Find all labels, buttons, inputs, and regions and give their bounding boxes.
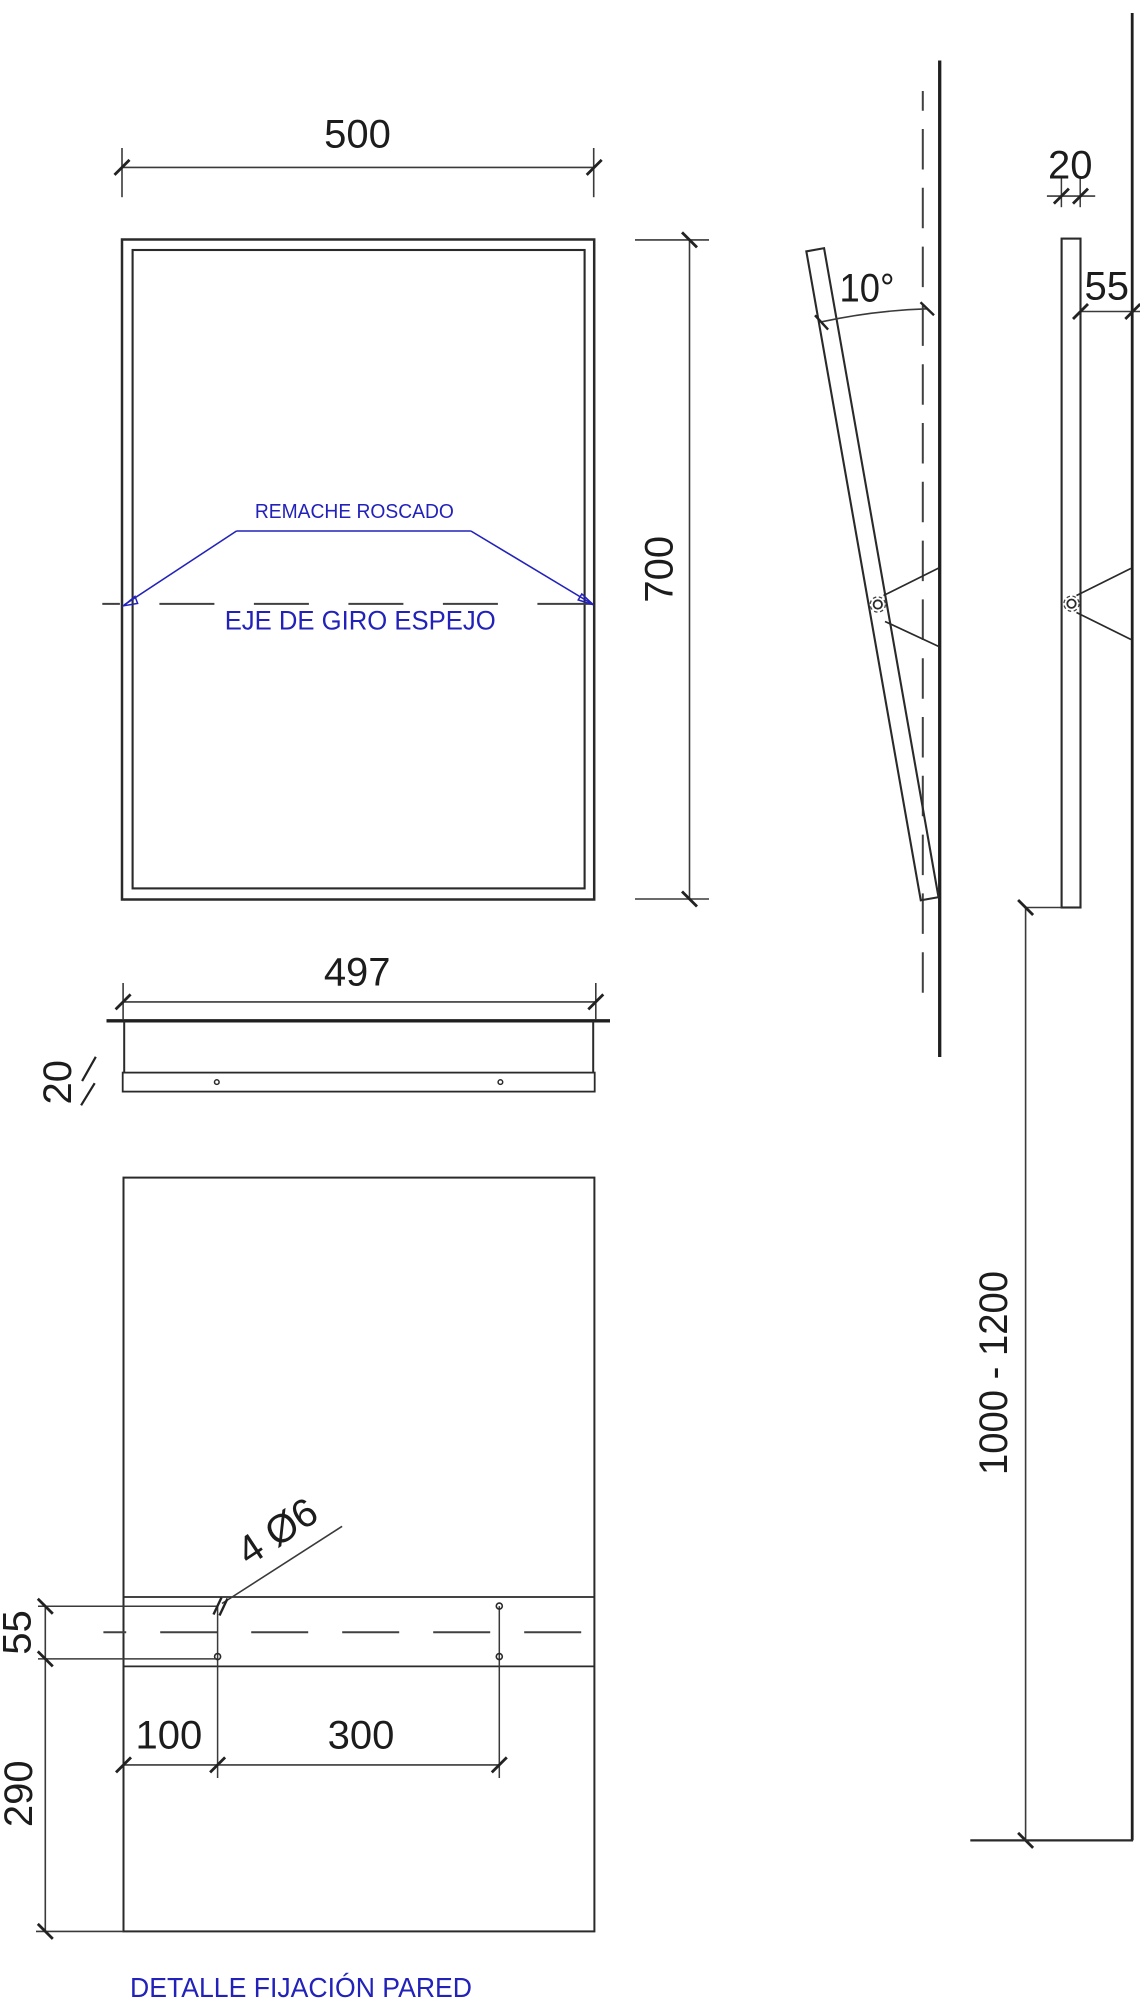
svg-text:DETALLE FIJACIÓN PARED: DETALLE FIJACIÓN PARED [130,1972,472,2000]
svg-text:700: 700 [638,536,682,603]
svg-text:300: 300 [328,1714,395,1758]
svg-text:20: 20 [36,1060,80,1105]
svg-text:20: 20 [1048,143,1093,187]
svg-text:REMACHE ROSCADO: REMACHE ROSCADO [255,501,454,523]
svg-text:55: 55 [1085,264,1130,308]
svg-text:10°: 10° [840,267,895,311]
svg-text:290: 290 [0,1760,41,1827]
svg-text:497: 497 [324,951,391,995]
svg-text:55: 55 [0,1610,40,1655]
svg-text:500: 500 [324,113,391,157]
svg-text:EJE DE GIRO ESPEJO: EJE DE GIRO ESPEJO [225,605,496,635]
svg-text:100: 100 [136,1714,203,1758]
svg-text:1000 - 1200: 1000 - 1200 [972,1271,1016,1475]
